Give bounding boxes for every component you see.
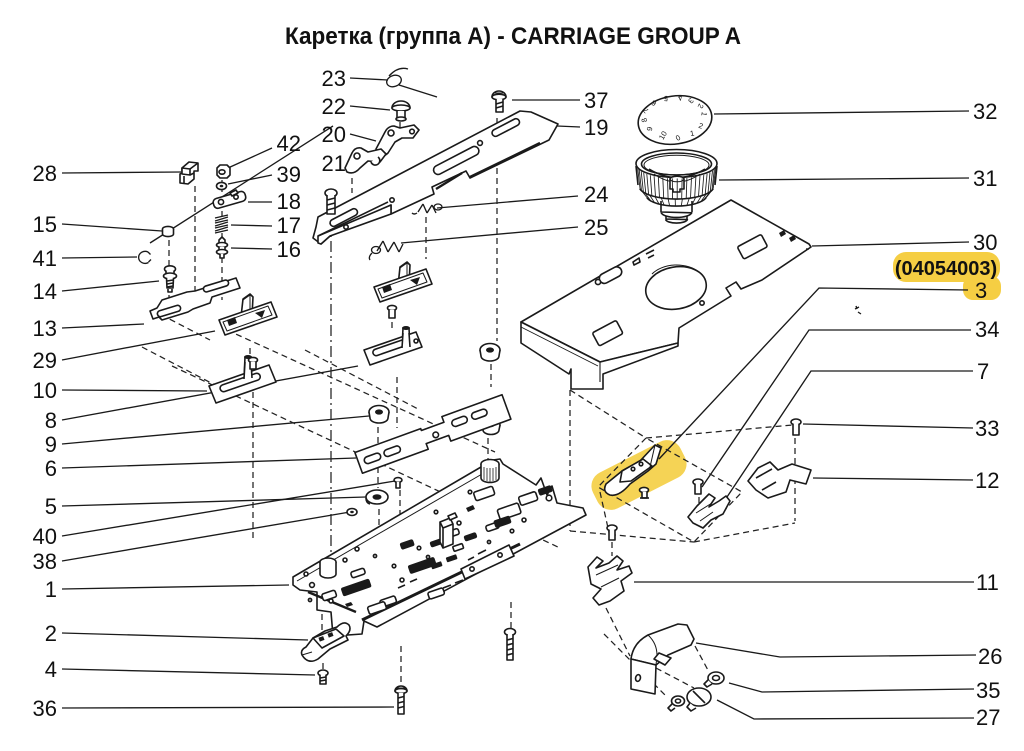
svg-text:38: 38 <box>33 549 57 574</box>
svg-text:2: 2 <box>45 621 57 646</box>
svg-text:31: 31 <box>973 166 997 191</box>
svg-text:25: 25 <box>584 215 608 240</box>
svg-text:40: 40 <box>33 524 57 549</box>
svg-text:35: 35 <box>976 678 1000 703</box>
svg-text:22: 22 <box>322 94 346 119</box>
svg-text:23: 23 <box>322 66 346 91</box>
svg-text:9: 9 <box>45 432 57 457</box>
svg-text:26: 26 <box>978 644 1002 669</box>
svg-text:34: 34 <box>975 317 999 342</box>
svg-text:13: 13 <box>33 316 57 341</box>
svg-text:7: 7 <box>977 359 989 384</box>
svg-text:18: 18 <box>277 189 301 214</box>
svg-text:37: 37 <box>584 88 608 113</box>
svg-text:32: 32 <box>973 99 997 124</box>
svg-text:41: 41 <box>33 246 57 271</box>
svg-text:5: 5 <box>663 94 668 103</box>
svg-text:15: 15 <box>33 212 57 237</box>
svg-text:10: 10 <box>33 378 57 403</box>
svg-text:5: 5 <box>45 494 57 519</box>
svg-text:6: 6 <box>45 456 57 481</box>
svg-text:12: 12 <box>975 468 999 493</box>
svg-text:1: 1 <box>45 577 57 602</box>
svg-text:39: 39 <box>277 162 301 187</box>
svg-text:8: 8 <box>45 408 57 433</box>
svg-text:16: 16 <box>277 237 301 262</box>
svg-text:29: 29 <box>33 348 57 373</box>
svg-text:17: 17 <box>277 213 301 238</box>
svg-text:28: 28 <box>33 161 57 186</box>
svg-text:Каретка (группа А) - CARRIAGE: Каретка (группа А) - CARRIAGE GROUP A <box>285 23 741 50</box>
svg-text:27: 27 <box>976 705 1000 730</box>
svg-text:4: 4 <box>45 657 57 682</box>
svg-text:19: 19 <box>584 115 608 140</box>
svg-text:33: 33 <box>975 416 999 441</box>
svg-text:30: 30 <box>973 230 997 255</box>
svg-text:3: 3 <box>975 278 987 303</box>
svg-text:20: 20 <box>322 122 346 147</box>
svg-text:11: 11 <box>976 570 999 595</box>
svg-text:42: 42 <box>277 131 301 156</box>
svg-text:21: 21 <box>322 151 346 176</box>
svg-text:14: 14 <box>33 279 57 304</box>
svg-text:(04054003): (04054003) <box>895 258 997 280</box>
svg-text:24: 24 <box>584 182 608 207</box>
svg-text:36: 36 <box>33 696 57 721</box>
